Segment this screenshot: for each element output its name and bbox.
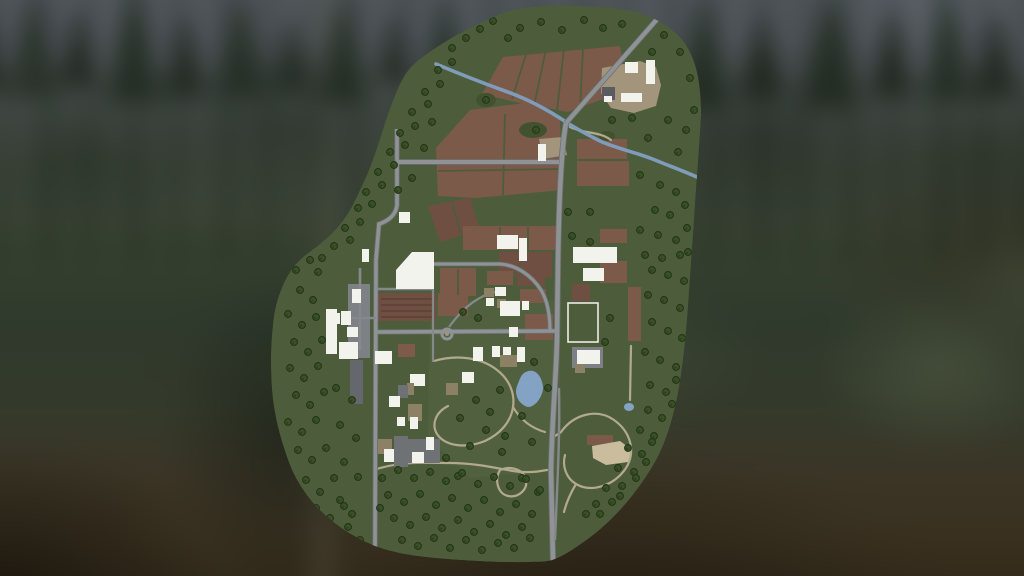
tree-shadow: [530, 514, 532, 516]
tree-icon: [633, 475, 640, 482]
tree-shadow: [528, 538, 530, 540]
tree-shadow: [498, 512, 500, 514]
small-pond: [624, 403, 634, 411]
tree-shadow: [408, 525, 410, 527]
tree-shadow: [652, 436, 654, 438]
tree-icon: [665, 328, 672, 335]
tree-icon: [655, 232, 662, 239]
tree-icon: [649, 49, 656, 56]
tree-shadow: [566, 212, 568, 214]
tree-icon: [483, 97, 490, 104]
tree-icon: [295, 447, 302, 454]
tree-icon: [321, 389, 328, 396]
tree-shadow: [426, 104, 428, 106]
tree-icon: [401, 499, 408, 506]
tree-icon: [303, 477, 310, 484]
tree-shadow: [604, 488, 606, 490]
tree-shadow: [364, 192, 366, 194]
tree-shadow: [678, 255, 680, 257]
tree-icon: [679, 335, 686, 342]
tree-icon: [513, 501, 520, 508]
tree-shadow: [506, 38, 508, 40]
tree-shadow: [650, 322, 652, 324]
tree-icon: [433, 502, 440, 509]
tree-shadow: [520, 478, 522, 480]
tree-shadow: [658, 360, 660, 362]
tree-icon: [465, 505, 472, 512]
tree-shadow: [416, 546, 418, 548]
tree-icon: [379, 475, 386, 482]
tree-icon: [439, 525, 446, 532]
tree-shadow: [662, 35, 664, 37]
tree-shadow: [634, 478, 636, 480]
tree-icon: [673, 237, 680, 244]
tree-icon: [391, 515, 398, 522]
tree-shadow: [603, 342, 605, 344]
tree-shadow: [646, 410, 648, 412]
tree-icon: [331, 243, 338, 250]
tree-icon: [313, 314, 320, 321]
tree-icon: [363, 189, 370, 196]
tree-icon: [619, 483, 626, 490]
tree-shadow: [680, 338, 682, 340]
tree-icon: [661, 297, 668, 304]
tree-icon: [531, 359, 538, 366]
building: [495, 287, 506, 296]
tree-shadow: [314, 420, 316, 422]
tree-icon: [313, 417, 320, 424]
tree-icon: [431, 535, 438, 542]
tree-shadow: [539, 22, 541, 24]
tree-shadow: [498, 390, 500, 392]
tree-icon: [490, 18, 497, 25]
tree-icon: [297, 287, 304, 294]
tree-shadow: [584, 514, 586, 516]
tree-shadow: [588, 212, 590, 214]
tree-icon: [545, 385, 552, 392]
tree-icon: [691, 107, 698, 114]
building: [522, 301, 529, 310]
tree-shadow: [482, 500, 484, 502]
tree-shadow: [294, 395, 296, 397]
tree-shadow: [288, 368, 290, 370]
tree-icon: [299, 429, 306, 436]
tree-icon: [529, 511, 536, 518]
tree-icon: [682, 202, 689, 209]
tree-icon: [617, 493, 624, 500]
tree-icon: [505, 35, 512, 42]
tree-icon: [395, 467, 402, 474]
tree-shadow: [496, 543, 498, 545]
tree-shadow: [430, 122, 432, 124]
tree-icon: [349, 511, 356, 518]
tree-shadow: [601, 28, 603, 30]
tree-shadow: [662, 300, 664, 302]
tree-shadow: [674, 240, 676, 242]
tree-shadow: [302, 378, 304, 380]
tree-shadow: [464, 38, 466, 40]
game-screen: [0, 0, 1024, 576]
tree-icon: [285, 311, 292, 318]
tree-icon: [301, 375, 308, 382]
tree-shadow: [450, 498, 452, 500]
tree-icon: [647, 382, 654, 389]
tree-shadow: [322, 392, 324, 394]
tree-icon: [649, 267, 656, 274]
tree-icon: [319, 255, 326, 262]
tree-shadow: [388, 152, 390, 154]
tree-shadow: [350, 400, 352, 402]
tree-icon: [387, 149, 394, 156]
building: [492, 346, 500, 357]
tree-shadow: [660, 418, 662, 420]
tree-icon: [657, 357, 664, 364]
tree-shadow: [650, 270, 652, 272]
tree-icon: [615, 465, 622, 472]
tree-shadow: [422, 148, 424, 150]
tree-shadow: [350, 514, 352, 516]
tree-icon: [685, 249, 692, 256]
building: [625, 62, 638, 73]
building: [519, 238, 527, 261]
tree-shadow: [342, 506, 344, 508]
tree-shadow: [688, 78, 690, 80]
tree-shadow: [392, 165, 394, 167]
tree-icon: [677, 252, 684, 259]
building: [339, 342, 358, 359]
tree-icon: [349, 397, 356, 404]
tree-icon: [421, 145, 428, 152]
tree-shadow: [318, 492, 320, 494]
building: [484, 288, 494, 297]
building: [575, 364, 585, 373]
tree-shadow: [436, 70, 438, 72]
tree-icon: [479, 547, 486, 554]
tree-icon: [527, 535, 534, 542]
tree-icon: [399, 537, 406, 544]
tree-shadow: [444, 458, 446, 460]
building: [486, 298, 494, 306]
tree-shadow: [491, 21, 493, 23]
tree-icon: [523, 476, 530, 483]
tree-icon: [684, 225, 691, 232]
tree-icon: [455, 517, 462, 524]
tree-icon: [569, 233, 576, 240]
tree-shadow: [488, 524, 490, 526]
tree-shadow: [412, 478, 414, 480]
tree-icon: [313, 505, 320, 512]
field: [600, 261, 627, 283]
tree-icon: [463, 35, 470, 42]
tree-icon: [587, 209, 594, 216]
tree-shadow: [484, 100, 486, 102]
tree-icon: [637, 427, 644, 434]
tree-shadow: [630, 118, 632, 120]
tree-icon: [677, 49, 684, 56]
tree-icon: [642, 252, 649, 259]
tree-shadow: [492, 477, 494, 479]
tree-shadow: [402, 502, 404, 504]
building: [500, 355, 517, 367]
tree-icon: [683, 127, 690, 134]
tree-shadow: [500, 452, 502, 454]
building: [604, 96, 612, 102]
tree-shadow: [650, 52, 652, 54]
roundabout-center: [445, 332, 449, 336]
world-map[interactable]: [0, 0, 1024, 576]
tree-shadow: [338, 425, 340, 427]
tree-shadow: [476, 318, 478, 320]
tree-shadow: [650, 442, 652, 444]
tree-icon: [471, 529, 478, 536]
tree-icon: [519, 413, 526, 420]
tree-icon: [659, 255, 666, 262]
tree-icon: [533, 127, 540, 134]
tree-shadow: [514, 504, 516, 506]
tree-icon: [447, 545, 454, 552]
building: [407, 383, 414, 395]
tree-shadow: [292, 342, 294, 344]
tree-shadow: [410, 178, 412, 180]
tree-shadow: [610, 120, 612, 122]
tree-shadow: [310, 460, 312, 462]
tree-icon: [529, 439, 536, 446]
tree-icon: [293, 392, 300, 399]
tree-shadow: [386, 495, 388, 497]
tree-icon: [415, 543, 422, 550]
building: [397, 417, 405, 426]
tree-shadow: [398, 133, 400, 135]
tree-shadow: [643, 255, 645, 257]
tree-icon: [675, 149, 682, 156]
tree-shadow: [464, 540, 466, 542]
field: [487, 271, 513, 285]
tree-shadow: [460, 473, 462, 475]
tree-icon: [507, 483, 514, 490]
tree-icon: [427, 469, 434, 476]
tree-icon: [538, 19, 545, 26]
tree-icon: [449, 59, 456, 66]
building: [362, 249, 369, 262]
tree-shadow: [582, 20, 584, 22]
tree-shadow: [428, 472, 430, 474]
tree-shadow: [311, 300, 313, 302]
building: [621, 93, 642, 102]
tree-icon: [649, 319, 656, 326]
tree-icon: [673, 364, 680, 371]
tree-icon: [409, 109, 416, 116]
tree-icon: [341, 459, 348, 466]
tree-shadow: [643, 352, 645, 354]
tree-icon: [537, 487, 544, 494]
tree-shadow: [646, 138, 648, 140]
tree-shadow: [298, 290, 300, 292]
tree-shadow: [503, 436, 505, 438]
tree-shadow: [546, 388, 548, 390]
building: [398, 344, 415, 357]
tree-icon: [673, 189, 680, 196]
tree-shadow: [570, 236, 572, 238]
tree-icon: [397, 130, 404, 137]
field: [577, 161, 629, 186]
tree-icon: [495, 540, 502, 547]
tree-shadow: [610, 502, 612, 504]
tree-icon: [609, 499, 616, 506]
tree-shadow: [472, 532, 474, 534]
tree-icon: [291, 339, 298, 346]
tree-shadow: [423, 92, 425, 94]
tree-icon: [449, 45, 456, 52]
tree-icon: [299, 322, 306, 329]
tree-shadow: [306, 352, 308, 354]
tree-icon: [475, 315, 482, 322]
tree-shadow: [456, 476, 458, 478]
field: [628, 287, 641, 341]
tree-shadow: [538, 490, 540, 492]
tree-icon: [657, 182, 664, 189]
tree-icon: [425, 101, 432, 108]
building: [347, 327, 358, 337]
tree-icon: [502, 433, 509, 440]
building: [375, 351, 392, 364]
tree-shadow: [396, 470, 398, 472]
tree-icon: [681, 278, 688, 285]
tree-shadow: [342, 462, 344, 464]
tree-shadow: [338, 500, 340, 502]
building: [332, 313, 340, 324]
tree-icon: [341, 503, 348, 510]
road: [377, 331, 557, 332]
building: [410, 417, 418, 429]
tree-icon: [519, 524, 526, 531]
tree-icon: [473, 397, 480, 404]
tree-shadow: [480, 550, 482, 552]
tree-shadow: [532, 362, 534, 364]
tree-icon: [429, 119, 436, 126]
tree-icon: [457, 415, 464, 422]
tree-icon: [460, 309, 467, 316]
tree-icon: [309, 457, 316, 464]
tree-shadow: [314, 508, 316, 510]
tree-icon: [357, 219, 364, 226]
tree-shadow: [346, 527, 348, 529]
tree-shadow: [488, 412, 490, 414]
tree-shadow: [448, 548, 450, 550]
tree-icon: [665, 117, 672, 124]
tree-shadow: [608, 318, 610, 320]
tree-shadow: [370, 204, 372, 206]
tree-shadow: [343, 228, 345, 230]
tree-icon: [411, 475, 418, 482]
tree-shadow: [461, 312, 463, 314]
tree-icon: [395, 187, 402, 194]
tree-icon: [315, 269, 322, 276]
tree-icon: [347, 237, 354, 244]
tree-icon: [517, 25, 524, 32]
tree-icon: [342, 225, 349, 232]
tree-icon: [619, 21, 626, 28]
tree-shadow: [683, 205, 685, 207]
tree-shadow: [560, 30, 562, 32]
tree-shadow: [466, 508, 468, 510]
tree-icon: [317, 489, 324, 496]
tree-shadow: [626, 448, 628, 450]
tree-icon: [337, 422, 344, 429]
tree-icon: [331, 475, 338, 482]
tree-shadow: [300, 432, 302, 434]
tree-shadow: [670, 404, 672, 406]
tree-shadow: [682, 281, 684, 283]
tree-icon: [443, 455, 450, 462]
tree-icon: [587, 239, 594, 246]
tree-icon: [475, 481, 482, 488]
tree-shadow: [678, 308, 680, 310]
tree-shadow: [620, 24, 622, 26]
tree-shadow: [358, 222, 360, 224]
tree-shadow: [478, 29, 480, 31]
tree-shadow: [684, 130, 686, 132]
tree-shadow: [598, 514, 600, 516]
tree-icon: [659, 415, 666, 422]
tree-shadow: [653, 210, 655, 212]
tree-icon: [477, 26, 484, 33]
tree-icon: [307, 257, 314, 264]
tree-shadow: [668, 215, 670, 217]
tree-icon: [437, 81, 444, 88]
tree-icon: [375, 169, 382, 176]
tree-shadow: [286, 314, 288, 316]
tree-icon: [652, 207, 659, 214]
tree-icon: [645, 407, 652, 414]
tree-shadow: [434, 505, 436, 507]
tree-icon: [593, 501, 600, 508]
tree-shadow: [358, 540, 360, 542]
tree-icon: [379, 182, 386, 189]
tree-icon: [629, 115, 636, 122]
tree-shadow: [524, 479, 526, 481]
tree-icon: [319, 337, 326, 344]
tree-icon: [497, 387, 504, 394]
tree-shadow: [484, 430, 486, 432]
building: [573, 247, 617, 263]
tree-icon: [645, 292, 652, 299]
tree-icon: [583, 511, 590, 518]
tree-shadow: [314, 317, 316, 319]
tree-shadow: [378, 508, 380, 510]
tree-icon: [305, 349, 312, 356]
tree-icon: [417, 491, 424, 498]
tree-shadow: [380, 478, 382, 480]
tree-icon: [463, 537, 470, 544]
tree-icon: [287, 365, 294, 372]
tree-icon: [412, 123, 419, 130]
tree-shadow: [520, 416, 522, 418]
tree-shadow: [403, 145, 405, 147]
tree-shadow: [508, 486, 510, 488]
building: [462, 372, 474, 383]
tree-shadow: [658, 185, 660, 187]
tree-icon: [673, 377, 680, 384]
building: [509, 327, 518, 337]
tree-icon: [559, 27, 566, 34]
tree-icon: [377, 505, 384, 512]
tree-shadow: [685, 228, 687, 230]
tree-shadow: [660, 258, 662, 260]
tree-icon: [663, 389, 670, 396]
tree-icon: [602, 339, 609, 346]
tree-shadow: [666, 120, 668, 122]
tree-shadow: [512, 548, 514, 550]
